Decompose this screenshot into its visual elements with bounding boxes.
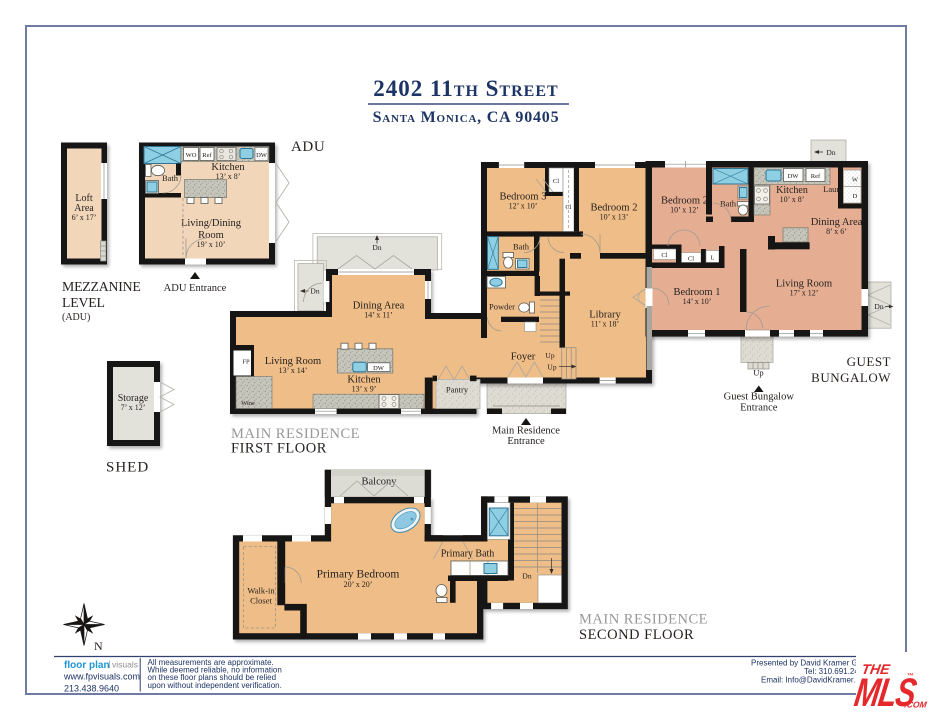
svg-text:www.fpvisuals.com: www.fpvisuals.com	[63, 672, 140, 682]
svg-text:Bath: Bath	[720, 199, 737, 209]
svg-text:BUNGALOW: BUNGALOW	[811, 370, 891, 385]
svg-text:Dn: Dn	[372, 243, 381, 252]
svg-text:MAIN RESIDENCE: MAIN RESIDENCE	[579, 612, 708, 628]
svg-text:19’ x 10’: 19’ x 10’	[197, 240, 226, 249]
svg-text:Cl: Cl	[553, 178, 559, 185]
svg-text:7’ x 12’: 7’ x 12’	[121, 403, 146, 412]
svg-text:Santa Monica, CA 90405: Santa Monica, CA 90405	[373, 109, 560, 126]
svg-text:Bath: Bath	[162, 173, 179, 183]
svg-text:Wine: Wine	[241, 400, 255, 407]
svg-text:Dn: Dn	[826, 148, 835, 157]
svg-text:Guest Bungalow: Guest Bungalow	[724, 392, 795, 403]
svg-text:DW: DW	[256, 152, 268, 159]
svg-text:Up: Up	[547, 363, 556, 372]
svg-text:13’ x 14’: 13’ x 14’	[279, 366, 308, 375]
svg-text:213.438.9640: 213.438.9640	[64, 684, 119, 694]
svg-text:ADU Entrance: ADU Entrance	[164, 283, 227, 294]
svg-text:Cl: Cl	[661, 252, 667, 259]
svg-text:Primary Bedroom: Primary Bedroom	[317, 569, 400, 581]
svg-text:14’ x 10’: 14’ x 10’	[683, 297, 712, 306]
svg-text:Tel: 310.691.24: Tel: 310.691.24	[804, 667, 859, 676]
svg-text:upon without independent verif: upon without independent verification.	[148, 681, 282, 690]
svg-text:(ADU): (ADU)	[62, 312, 90, 323]
svg-text:Presented by David Kramer Gro: Presented by David Kramer Gro	[751, 658, 865, 667]
svg-text:Main Residence: Main Residence	[492, 426, 560, 437]
svg-text:Ref: Ref	[811, 173, 821, 180]
svg-text:DW: DW	[788, 173, 800, 180]
svg-text:Cl: Cl	[688, 256, 694, 263]
svg-text:Ref: Ref	[202, 152, 212, 159]
svg-text:Dn: Dn	[874, 302, 883, 311]
svg-text:N: N	[94, 639, 103, 653]
svg-text:FP: FP	[242, 359, 250, 366]
svg-text:Primary Bath: Primary Bath	[441, 549, 495, 560]
svg-text:FIRST FLOOR: FIRST FLOOR	[231, 441, 327, 457]
svg-text:11’ x 18’: 11’ x 18’	[591, 320, 619, 329]
svg-text:8’ x 6’: 8’ x 6’	[826, 227, 847, 236]
svg-text:13’ x 9’: 13’ x 9’	[352, 385, 377, 394]
svg-text:12’ x 10’: 12’ x 10’	[509, 202, 538, 211]
svg-text:Closet: Closet	[250, 596, 272, 606]
svg-text:Living/Dining: Living/Dining	[181, 218, 242, 229]
svg-text:Walk-in: Walk-in	[247, 586, 275, 596]
svg-text:Powder: Powder	[489, 302, 515, 312]
svg-text:SHED: SHED	[106, 460, 149, 476]
svg-text:Up: Up	[545, 351, 554, 360]
svg-text:Cl: Cl	[565, 204, 571, 211]
svg-text:Entrance: Entrance	[507, 436, 545, 447]
svg-text:™: ™	[906, 673, 914, 680]
svg-text:visuals: visuals	[112, 660, 138, 670]
svg-text:10’ x 8’: 10’ x 8’	[780, 195, 805, 204]
svg-text:WO: WO	[186, 152, 197, 159]
svg-text:MEZZANINE: MEZZANINE	[62, 279, 141, 294]
svg-text:20’ x 20’: 20’ x 20’	[344, 580, 373, 589]
svg-text:DW: DW	[373, 365, 385, 372]
svg-text:Laun.: Laun.	[823, 184, 843, 194]
svg-text:Dn: Dn	[310, 287, 319, 296]
svg-text:floor plan: floor plan	[64, 660, 110, 671]
svg-text:LEVEL: LEVEL	[62, 295, 105, 310]
svg-text:Up: Up	[753, 368, 763, 378]
svg-text:6’ x 17’: 6’ x 17’	[72, 213, 97, 222]
svg-text:W: W	[852, 177, 859, 184]
svg-text:10’ x 12’: 10’ x 12’	[670, 206, 699, 215]
svg-text:Entrance: Entrance	[740, 403, 778, 414]
svg-text:Pantry: Pantry	[446, 385, 469, 395]
svg-text:Foyer: Foyer	[511, 352, 536, 363]
svg-text:Email: Info@DavidKramer.: Email: Info@DavidKramer.	[761, 676, 855, 685]
svg-text:.COM: .COM	[904, 700, 929, 710]
svg-text:14’ x 11’: 14’ x 11’	[364, 311, 392, 320]
svg-text:2402 11th Street: 2402 11th Street	[373, 76, 558, 101]
svg-text:Bath: Bath	[513, 242, 530, 252]
svg-text:SECOND FLOOR: SECOND FLOOR	[579, 627, 694, 643]
svg-text:L: L	[711, 255, 715, 262]
svg-text:17’ x 12’: 17’ x 12’	[790, 289, 819, 298]
svg-text:D: D	[853, 193, 858, 200]
svg-text:Dn: Dn	[522, 572, 531, 581]
svg-text:GUEST: GUEST	[847, 354, 891, 369]
svg-text:ADU: ADU	[291, 139, 325, 155]
svg-text:10’ x 13’: 10’ x 13’	[600, 213, 629, 222]
